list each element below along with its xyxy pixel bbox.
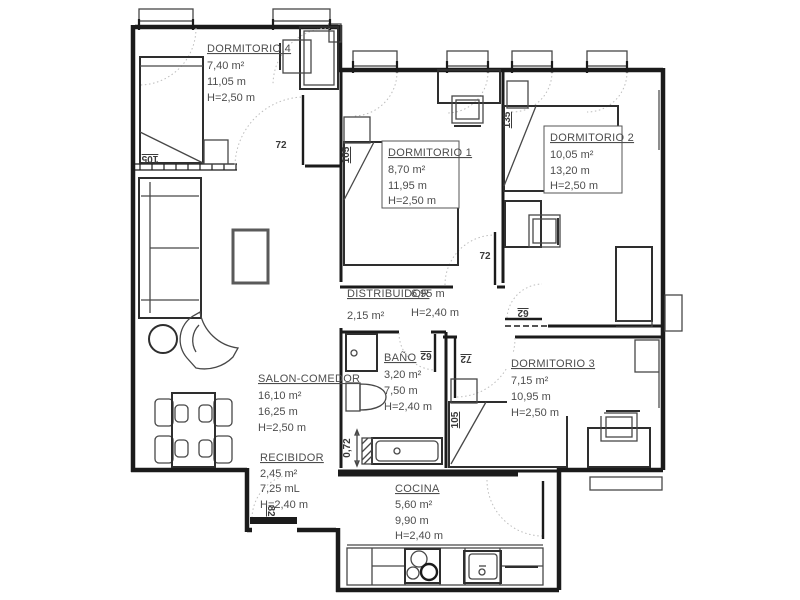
floor-plan: DORMITORIO 4 7,40 m² 11,05 m H=2,50 m 72… — [0, 0, 800, 600]
room-cocina: COCINA 5,60 m² 9,90 m H=2,40 m — [347, 483, 543, 585]
room-ceiling: H=2,50 m — [388, 195, 436, 207]
door-width-label: 62 — [517, 307, 529, 318]
door-width-label: 72 — [460, 353, 472, 364]
dim-line — [355, 430, 359, 466]
dining-table-set — [155, 393, 232, 467]
room-perimeter: 7,50 m — [384, 385, 418, 397]
room-perimeter: 10,95 m — [511, 391, 551, 403]
bathtub — [372, 438, 442, 464]
nightstand — [344, 117, 370, 143]
room-perimeter: 13,20 m — [550, 165, 590, 177]
room-area: 3,20 m² — [384, 369, 422, 381]
entrance-door-leaf — [250, 517, 297, 524]
room-dormitorio-3: DORMITORIO 3 7,15 m² 10,95 m H=2,50 m 72… — [449, 340, 659, 467]
bed-width-label: 105 — [450, 411, 461, 428]
room-perimeter: 9,90 m — [395, 515, 429, 527]
floor-plan-svg: DORMITORIO 4 7,40 m² 11,05 m H=2,50 m 72… — [0, 0, 800, 600]
coffee-table — [233, 230, 268, 283]
sink-drain — [351, 350, 357, 356]
wardrobe — [616, 247, 652, 321]
room-label: DORMITORIO 4 — [207, 43, 291, 55]
radiator — [353, 51, 397, 66]
room-area: 8,70 m² — [388, 164, 426, 176]
dining-chair — [155, 399, 173, 426]
room-recibidor: RECIBIDOR 2,45 m² 7,25 mL H=2,40 m 82 — [260, 452, 324, 517]
room-ceiling: H=2,40 m — [384, 401, 432, 413]
room-ceiling: H=2,50 m — [511, 407, 559, 419]
radiator — [665, 295, 682, 331]
dining-table — [172, 393, 215, 467]
nightstand — [204, 140, 228, 164]
room-label: DORMITORIO 2 — [550, 132, 634, 144]
desk-chair-inner — [533, 219, 556, 243]
room-perimeter: 11,05 m — [207, 76, 246, 88]
kitchen-counter — [347, 545, 543, 585]
armchair — [180, 312, 238, 369]
room-distribuidor: DISTRIBUIDOR 6,95 m 2,15 m² H=2,40 m — [347, 288, 459, 322]
entrance-door-label: 82 — [265, 505, 276, 517]
room-perimeter: 11,95 m — [388, 180, 427, 192]
room-dormitorio-4: DORMITORIO 4 7,40 m² 11,05 m H=2,50 m 72… — [140, 27, 338, 164]
door-width-label: 72 — [479, 251, 491, 262]
sink — [464, 551, 501, 583]
desk — [588, 428, 650, 467]
radiator — [590, 477, 662, 490]
chair-seat — [199, 440, 212, 457]
swing-arcs — [139, 28, 627, 536]
room-ceiling: H=2,40 m — [411, 307, 459, 319]
room-salon-comedor: SALON-COMEDOR 16,10 m² 16,25 m H=2,50 m — [139, 178, 360, 467]
bed-width-label: 105 — [341, 146, 352, 163]
room-dormitorio-2: DORMITORIO 2 10,05 m² 13,20 m H=2,50 m 1… — [502, 81, 652, 327]
bathtub-width-label: 0,72 — [342, 438, 353, 458]
radiator — [512, 51, 552, 66]
room-ceiling: H=2,50 m — [207, 92, 255, 104]
radiator — [273, 9, 330, 21]
room-area: 2,15 m² — [347, 310, 385, 322]
chair-seat — [199, 405, 212, 422]
room-area: 7,40 m² — [207, 60, 245, 72]
room-area: 2,45 m² — [260, 468, 298, 480]
toilet-tank — [346, 383, 360, 411]
sofa — [139, 178, 201, 318]
chair-seat — [175, 440, 188, 457]
dining-chair — [155, 436, 173, 463]
room-area: 16,10 m² — [258, 390, 302, 402]
wardrobe — [300, 27, 338, 89]
radiator — [139, 9, 193, 21]
dining-chair — [214, 436, 232, 463]
room-area: 7,15 m² — [511, 375, 549, 387]
room-label: RECIBIDOR — [260, 452, 324, 464]
toilet-bowl — [360, 384, 386, 410]
room-ceiling: H=2,40 m — [395, 530, 443, 542]
room-label: DORMITORIO 3 — [511, 358, 595, 370]
room-ceiling: H=2,50 m — [550, 180, 598, 192]
room-label: DORMITORIO 1 — [388, 147, 472, 159]
room-perimeter: 16,25 m — [258, 406, 298, 418]
door-width-label: 62 — [420, 350, 432, 361]
stove — [405, 549, 440, 583]
burner-dark — [421, 564, 437, 580]
side-table — [149, 325, 177, 353]
radiator — [447, 51, 488, 66]
room-area: 5,60 m² — [395, 499, 433, 511]
bed-width-label: 135 — [502, 111, 513, 128]
wardrobe — [635, 340, 659, 372]
desk-chair — [529, 215, 560, 247]
dining-chair — [214, 399, 232, 426]
room-dormitorio-1: DORMITORIO 1 8,70 m² 11,95 m H=2,50 m 10… — [341, 70, 500, 265]
room-perimeter: 7,25 mL — [260, 483, 300, 495]
room-label: SALON-COMEDOR — [258, 373, 360, 385]
room-ceiling: H=2,50 m — [258, 422, 306, 434]
desk — [438, 70, 500, 103]
desk — [505, 201, 541, 247]
bed-fold-line — [451, 402, 486, 464]
room-area: 10,05 m² — [550, 149, 594, 161]
door-width-label: 72 — [275, 140, 287, 151]
nightstand — [507, 81, 528, 108]
room-label: BAÑO — [384, 351, 417, 364]
radiator — [587, 51, 627, 66]
bed-width-label: 105 — [141, 153, 158, 164]
room-bano: BAÑO 3,20 m² 7,50 m H=2,40 m 62 0,72 — [342, 334, 442, 466]
room-perimeter: 6,95 m — [411, 288, 445, 300]
chair-seat — [175, 405, 188, 422]
room-label: COCINA — [395, 483, 440, 495]
tiled-wall-hatch — [362, 438, 372, 464]
